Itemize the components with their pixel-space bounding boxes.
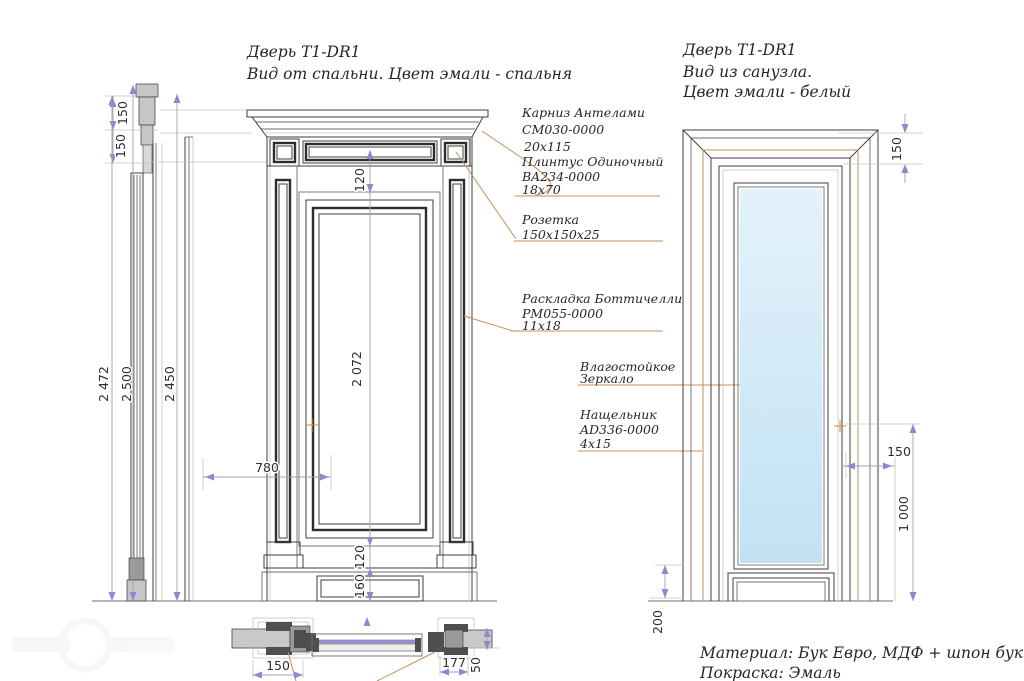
annotation-raskladka: Раскладка Боттичелли PM055-0000 11x18: [521, 291, 682, 333]
dim-front-plinth: 160: [352, 574, 367, 598]
annotation-nashchelnik-name: Нащельник: [579, 407, 657, 422]
annotation-plintus-name: Плинтус Одиночный: [521, 154, 663, 169]
dim-mirror-casing: 150: [887, 444, 911, 459]
mirror-edge-section: [316, 640, 418, 643]
footer-note: Материал: Бук Евро, МДФ + шпон бук Покра…: [699, 644, 1024, 681]
annotations: Карниз Антелами CM030-0000 20x115 Плинту…: [521, 105, 682, 451]
handle-cross-mirror: [834, 420, 846, 432]
side-view: 150 150 2 472 2 500 2 450: [96, 84, 268, 601]
front-view-bedroom: 120 2 072 120 160 780: [203, 110, 488, 601]
annotation-rozetka-name: Розетка: [521, 212, 579, 227]
annotation-zerkalo: Влагостойкое Зеркало: [579, 359, 675, 386]
dim-side-crown-bottom: 150: [113, 134, 128, 158]
annotation-plintus: Плинтус Одиночный BA234-0000 18x70: [521, 154, 663, 197]
mirror-view-title-line3: Цвет эмали - белый: [683, 83, 851, 101]
annotation-karniz-name: Карниз Антелами: [521, 105, 645, 120]
handle-cross-front: [305, 418, 319, 432]
front-view-title-line1: Дверь T1-DR1: [246, 43, 360, 61]
annotation-raskladka-name: Раскладка Боттичелли: [521, 291, 682, 306]
mirror-glass: [740, 189, 822, 563]
annotation-karniz-code: CM030-0000: [522, 122, 604, 137]
annotation-karniz: Карниз Антелами CM030-0000 20x115: [521, 105, 645, 154]
door-drawing-sheet: 150 150 2 472 2 500 2 450: [0, 0, 1024, 681]
plan-view: 150 177 50: [232, 617, 500, 681]
technical-drawing: 150 150 2 472 2 500 2 450: [0, 0, 1024, 681]
annotation-rozetka: Розетка 150x150x25: [521, 212, 600, 242]
mirror-view-bathroom: 150 150 1 000 200: [650, 114, 923, 634]
annotation-nashchelnik-size: 4x15: [579, 436, 611, 451]
dim-front-leaf-height: 2 072: [349, 351, 364, 387]
annotation-nashchelnik: Нащельник AD336-0000 4x15: [579, 407, 659, 451]
annotation-raskladka-size: 11x18: [522, 318, 561, 333]
titles: Дверь T1-DR1 Вид от спальни. Цвет эмали …: [246, 41, 851, 101]
annotation-nashchelnik-code: AD336-0000: [579, 422, 659, 437]
annotation-rozetka-size: 150x150x25: [522, 227, 600, 242]
dim-side-crown-top: 150: [115, 101, 130, 125]
dim-plan-casing-left: 150: [266, 658, 290, 673]
front-view-title-line2: Вид от спальни. Цвет эмали - спальня: [246, 65, 572, 83]
dim-mirror-head: 150: [889, 137, 904, 161]
dim-front-frieze: 120: [352, 168, 367, 192]
mirror-view-title-line1: Дверь T1-DR1: [682, 41, 796, 59]
watermark: [12, 621, 174, 669]
dim-plan-casing-right: 177: [442, 655, 466, 670]
annotation-plintus-size: 18x70: [522, 182, 561, 197]
dim-mirror-height: 1 000: [896, 496, 911, 532]
mirror-view-title-line2: Вид из санузла.: [682, 63, 812, 81]
dim-plan-jamb-depth: 50: [468, 657, 483, 673]
dim-mirror-plinth: 200: [650, 610, 665, 634]
dim-front-leaf-width: 780: [255, 460, 279, 475]
dim-front-panel-bottom: 120: [352, 545, 367, 569]
dim-side-opening: 2 450: [162, 366, 177, 402]
annotation-karniz-size: 20x115: [523, 139, 571, 154]
annotation-zerkalo-line2: Зеркало: [580, 371, 634, 386]
material-note: Материал: Бук Евро, МДФ + шпон бук: [699, 644, 1024, 662]
dim-side-overall: 2 500: [119, 366, 134, 402]
dim-side-total: 2 472: [96, 366, 111, 402]
paint-note: Покраска: Эмаль: [699, 664, 841, 681]
